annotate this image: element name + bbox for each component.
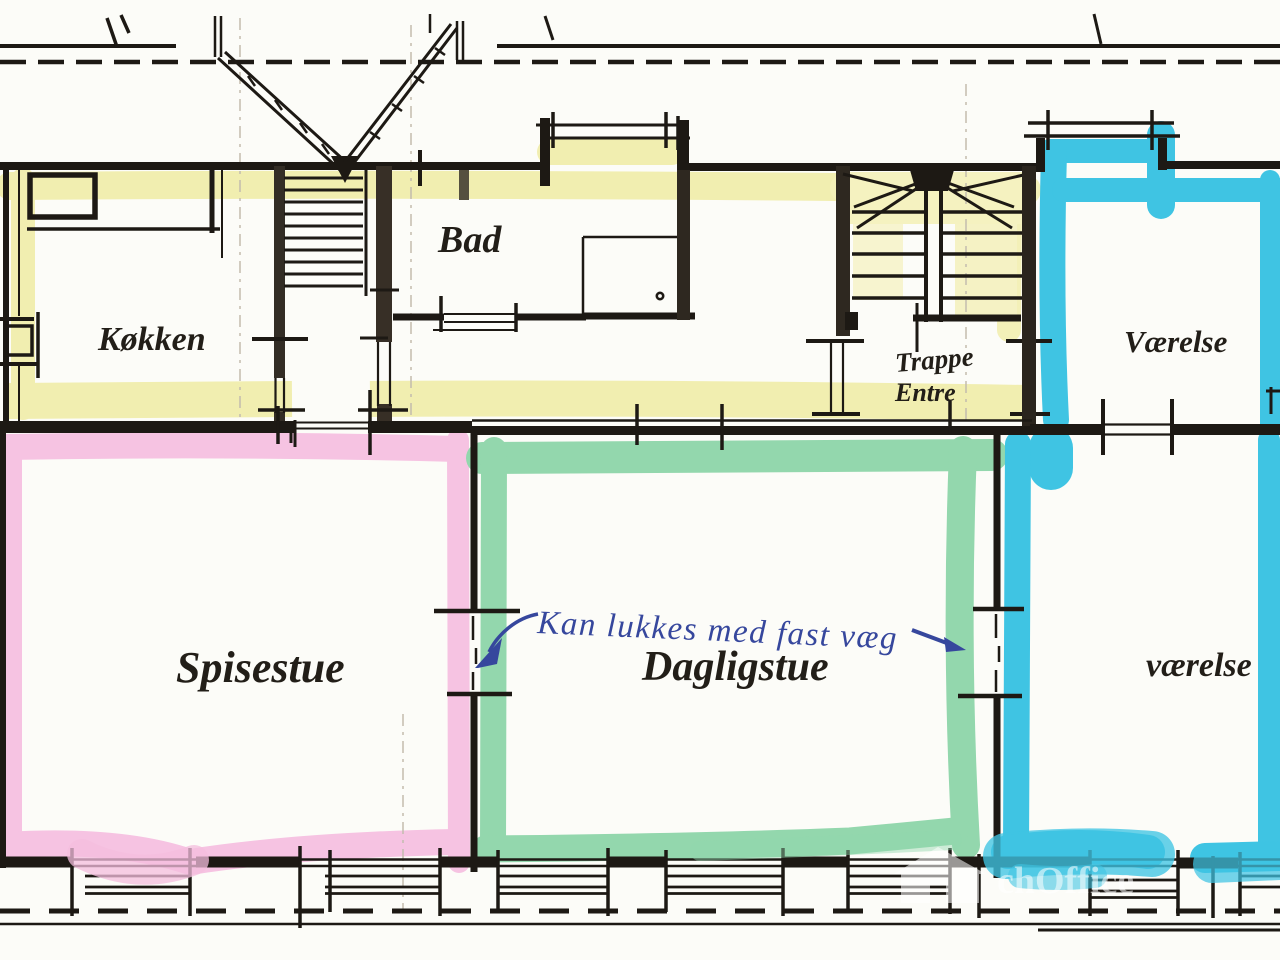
svg-text:Bad: Bad [437,219,502,261]
svg-text:chOffice: chOffice [997,860,1134,902]
svg-text:værelse: værelse [1146,647,1252,684]
svg-text:Køkken: Køkken [97,321,206,358]
svg-text:Spisestue: Spisestue [176,643,345,692]
svg-text:Værelse: Værelse [1124,324,1228,359]
svg-text:Entre: Entre [894,378,956,407]
